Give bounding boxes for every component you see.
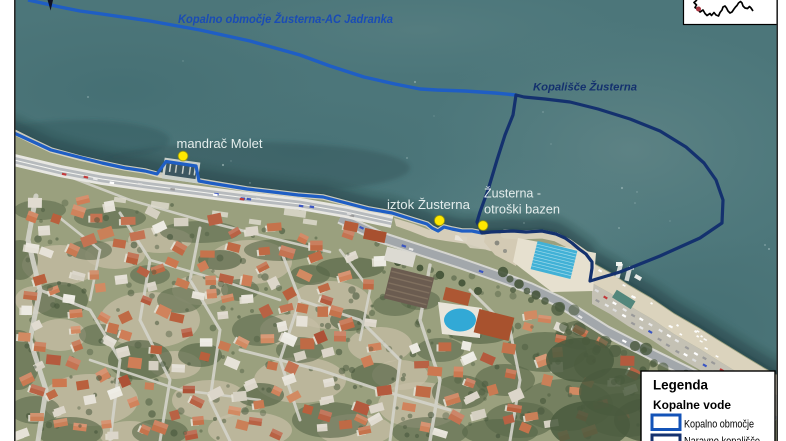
svg-text:mandrač Molet: mandrač Molet xyxy=(177,137,264,151)
svg-text:Naravno kopališče: Naravno kopališče xyxy=(684,436,760,441)
svg-text:Kopalne vode: Kopalne vode xyxy=(653,398,731,412)
svg-text:Kopališče Žusterna: Kopališče Žusterna xyxy=(533,81,637,94)
svg-text:iztok Žusterna: iztok Žusterna xyxy=(387,197,470,212)
svg-text:otroški bazen: otroški bazen xyxy=(484,203,560,217)
svg-text:Kopalno območje Žusterna-AC Ja: Kopalno območje Žusterna-AC Jadranka xyxy=(178,12,393,26)
svg-text:Legenda: Legenda xyxy=(653,377,708,392)
svg-text:Kopalno območje: Kopalno območje xyxy=(684,419,754,431)
svg-text:Žusterna -: Žusterna - xyxy=(484,186,541,201)
